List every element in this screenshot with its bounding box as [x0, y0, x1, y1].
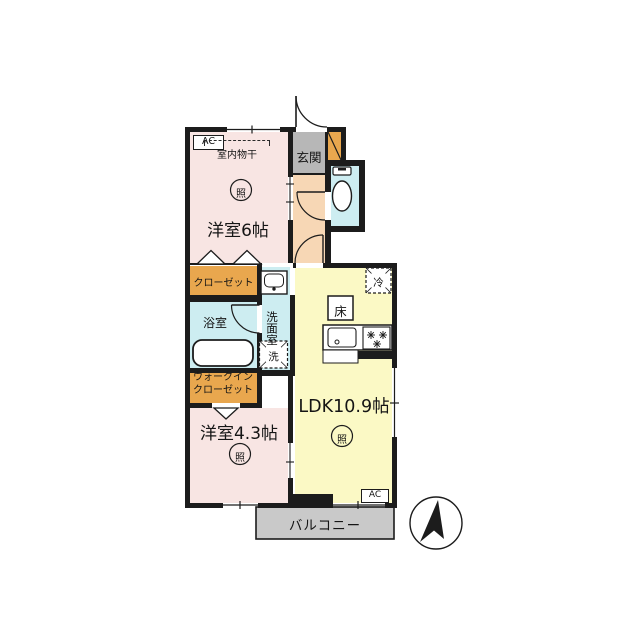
- compass: [410, 497, 462, 549]
- indoor-drying-label: 室内物干: [202, 146, 272, 161]
- entrance-door: [296, 96, 327, 127]
- toilet-fixture: [333, 167, 352, 211]
- kitchen-sink: [328, 328, 356, 347]
- floor-plan-drawing: [0, 0, 640, 640]
- genkan-label: 玄関: [293, 147, 325, 166]
- ldk-label: LDK10.9帖: [290, 393, 398, 418]
- room43-label: 洋室4.3帖: [183, 419, 295, 444]
- washer-label: 洗: [266, 349, 281, 364]
- genkan-step: [293, 173, 325, 175]
- wash-basin: [261, 271, 287, 294]
- closet-label: クローゼット: [189, 274, 258, 289]
- kitchen-stub-wall: [358, 351, 394, 359]
- fridge-label: 冷: [371, 275, 386, 290]
- floor-hatch-label: 床: [332, 301, 349, 320]
- bathtub: [193, 340, 253, 366]
- bath-label: 浴室: [193, 314, 237, 331]
- light-label-room43: 照: [230, 449, 250, 464]
- floor-plan-canvas: AC 室内物干 照 洋室6帖 玄関 クローゼット 浴室 洗面室 洗 ウォークイン…: [0, 0, 640, 640]
- kitchen-stove: [363, 327, 390, 349]
- room6-label: 洋室6帖: [187, 216, 289, 241]
- balcony-label: バルコニー: [270, 514, 380, 534]
- light-label-ldk: 照: [332, 431, 352, 446]
- walkin-closet-label: ウォークイン クローゼット: [185, 371, 261, 397]
- ac-label-ldk: AC: [361, 489, 389, 503]
- light-label-room6: 照: [231, 185, 251, 200]
